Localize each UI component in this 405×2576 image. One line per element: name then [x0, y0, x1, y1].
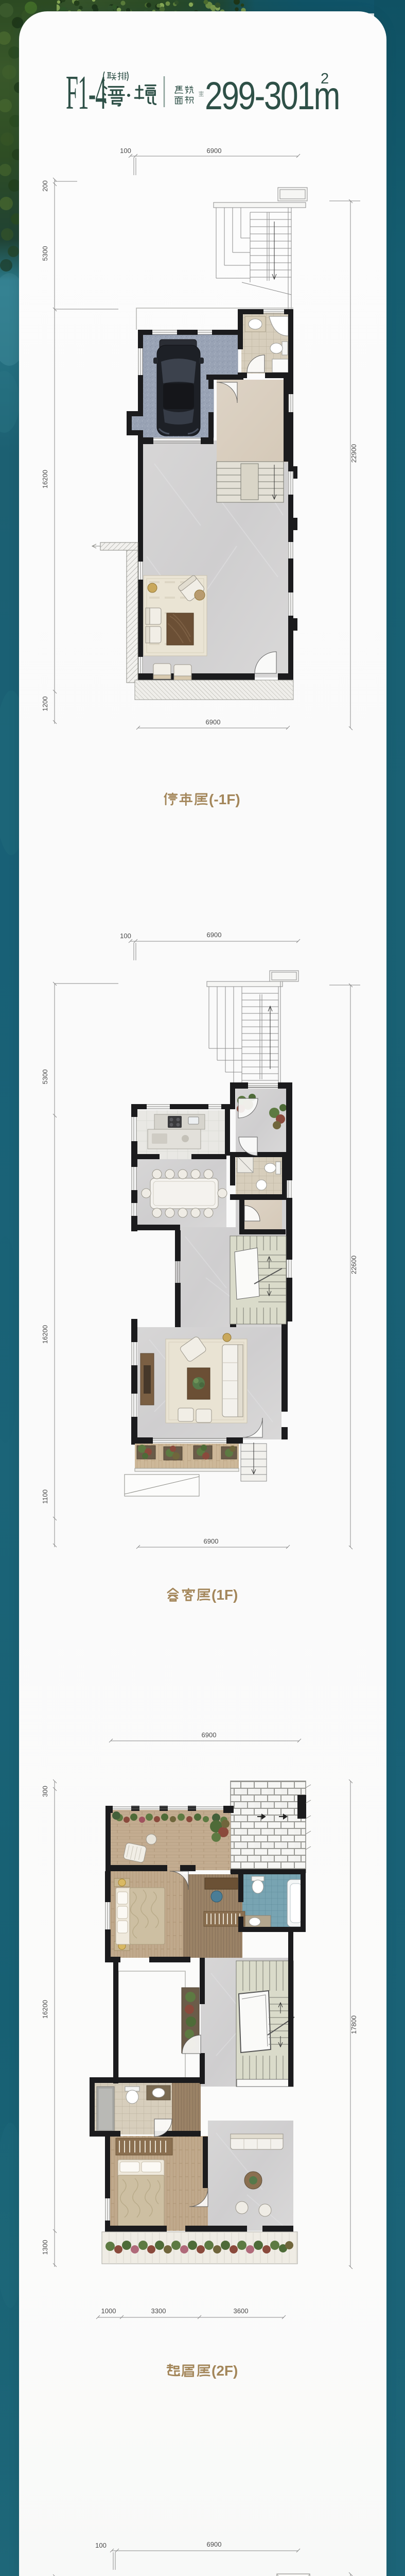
svg-text:1000: 1000	[101, 2307, 116, 2315]
svg-text:22900: 22900	[350, 444, 358, 463]
svg-text:F1-4: F1-4	[66, 65, 107, 119]
svg-text:200: 200	[41, 180, 49, 192]
svg-text:3300: 3300	[151, 2307, 166, 2315]
svg-text:6900: 6900	[207, 2540, 222, 2548]
svg-text:16200: 16200	[41, 470, 49, 488]
svg-text:(1F): (1F)	[212, 1587, 238, 1603]
svg-text:5300: 5300	[41, 246, 49, 261]
svg-text:16200: 16200	[41, 2000, 49, 2019]
svg-text:5300: 5300	[41, 1070, 49, 1084]
svg-text:1100: 1100	[41, 1489, 49, 1504]
svg-text:6900: 6900	[202, 1731, 217, 1739]
svg-text:16200: 16200	[41, 1325, 49, 1344]
svg-text:17800: 17800	[350, 2015, 358, 2034]
svg-text:6900: 6900	[207, 931, 222, 939]
svg-text:100: 100	[120, 147, 131, 155]
svg-text:(2F): (2F)	[212, 2363, 238, 2379]
svg-text:2: 2	[321, 71, 329, 87]
svg-text:6900: 6900	[204, 1537, 219, 1545]
svg-text:299-301m: 299-301m	[205, 74, 339, 117]
svg-text:1300: 1300	[41, 2240, 49, 2255]
svg-text:6900: 6900	[206, 718, 221, 726]
svg-text:1200: 1200	[41, 697, 49, 711]
svg-text:22600: 22600	[350, 1256, 358, 1274]
svg-text:6900: 6900	[207, 147, 222, 155]
svg-text:300: 300	[41, 1786, 49, 1797]
svg-text:3600: 3600	[234, 2307, 249, 2315]
svg-text:100: 100	[95, 2541, 107, 2549]
svg-text:(-1F): (-1F)	[209, 791, 240, 807]
svg-text:100: 100	[120, 932, 131, 940]
